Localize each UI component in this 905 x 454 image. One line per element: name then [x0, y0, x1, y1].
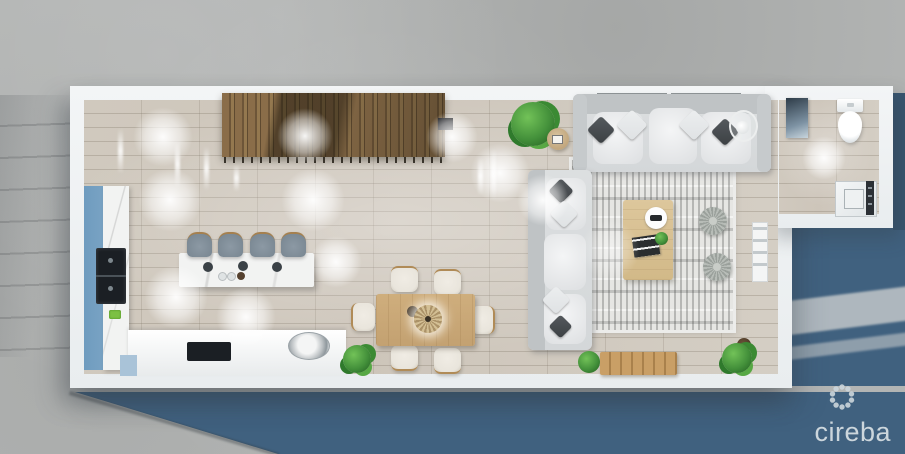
cireba-logo: cireba	[761, 382, 891, 444]
island-item	[237, 272, 245, 280]
floor-lamp	[729, 110, 758, 142]
light-reflection	[779, 331, 905, 362]
stair-newel	[438, 118, 453, 130]
island-plate	[227, 272, 236, 281]
shower-panel	[786, 98, 808, 138]
light-reflection	[779, 285, 905, 337]
bar-stool	[281, 232, 306, 257]
tray	[645, 207, 667, 229]
bar-stool	[250, 232, 275, 257]
cabinet-end-panel	[120, 355, 137, 376]
table-plant	[655, 232, 668, 245]
dining-chair	[391, 266, 418, 292]
oven-knob	[108, 286, 113, 291]
vanity-faucet	[866, 181, 874, 215]
potted-plant	[343, 345, 371, 373]
sofa-back	[528, 170, 545, 350]
floor-pouf	[699, 207, 727, 235]
bar-stool	[218, 232, 243, 257]
floorplan-render: cireba	[0, 0, 905, 454]
kitchen-island	[179, 253, 314, 287]
oven-knob	[108, 258, 113, 263]
bar-stool	[187, 232, 212, 257]
dining-chair	[434, 348, 461, 374]
island-bowl	[203, 262, 213, 272]
dining-chair	[434, 269, 461, 295]
stair-balusters	[224, 157, 444, 163]
sofa-arm	[573, 94, 587, 172]
water-area-right	[779, 228, 905, 386]
blanket-ladder	[752, 222, 768, 282]
floor-pouf	[703, 253, 731, 281]
dotted-flower-icon	[827, 382, 857, 417]
potted-plant	[722, 343, 752, 373]
water-area-edge	[893, 93, 905, 230]
dining-chair	[351, 303, 375, 331]
dining-chair	[391, 345, 418, 371]
wall-oven-stack	[96, 248, 126, 304]
chaise-sofa	[528, 170, 592, 350]
round-sink	[288, 332, 330, 360]
potted-plant	[578, 351, 600, 373]
cutting-board	[109, 310, 121, 319]
island-bowl	[238, 261, 248, 271]
wooden-staircase	[222, 93, 445, 157]
island-bowl	[272, 262, 282, 272]
outdoor-bench	[600, 352, 677, 375]
rattan-centerpiece	[414, 305, 442, 333]
exterior-steps	[0, 95, 72, 357]
island-plate	[218, 272, 227, 281]
seat-cushion	[544, 234, 586, 290]
logo-text: cireba	[761, 419, 891, 446]
side-table	[547, 128, 569, 150]
sofa-arm	[757, 94, 771, 172]
cooktop	[187, 342, 231, 361]
